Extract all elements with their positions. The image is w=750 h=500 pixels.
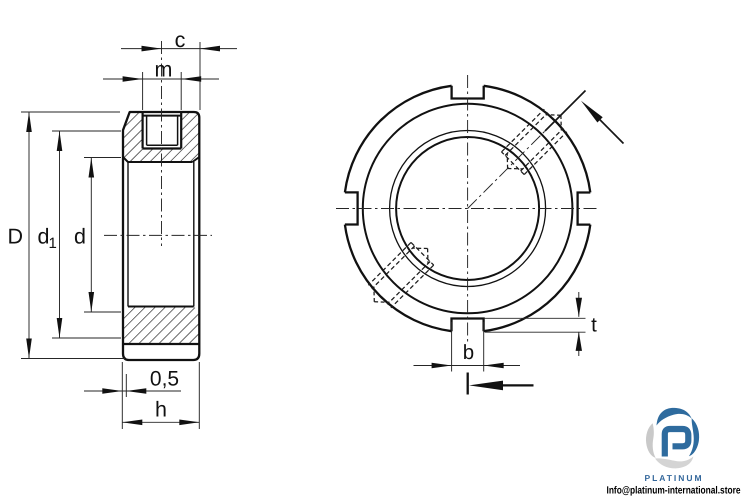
svg-text:0,5: 0,5 [150, 368, 179, 391]
svg-text:D: D [8, 225, 24, 249]
svg-text:m: m [155, 58, 173, 82]
svg-text:b: b [463, 341, 474, 364]
svg-text:d: d [74, 225, 86, 249]
svg-text:c: c [175, 28, 186, 52]
svg-text:PLATINUM: PLATINUM [645, 473, 704, 483]
svg-text:t: t [591, 314, 597, 337]
svg-text:Info@platinum-international.st: Info@platinum-international.store [607, 486, 741, 497]
svg-text:h: h [155, 397, 167, 421]
svg-text:1: 1 [49, 235, 57, 252]
